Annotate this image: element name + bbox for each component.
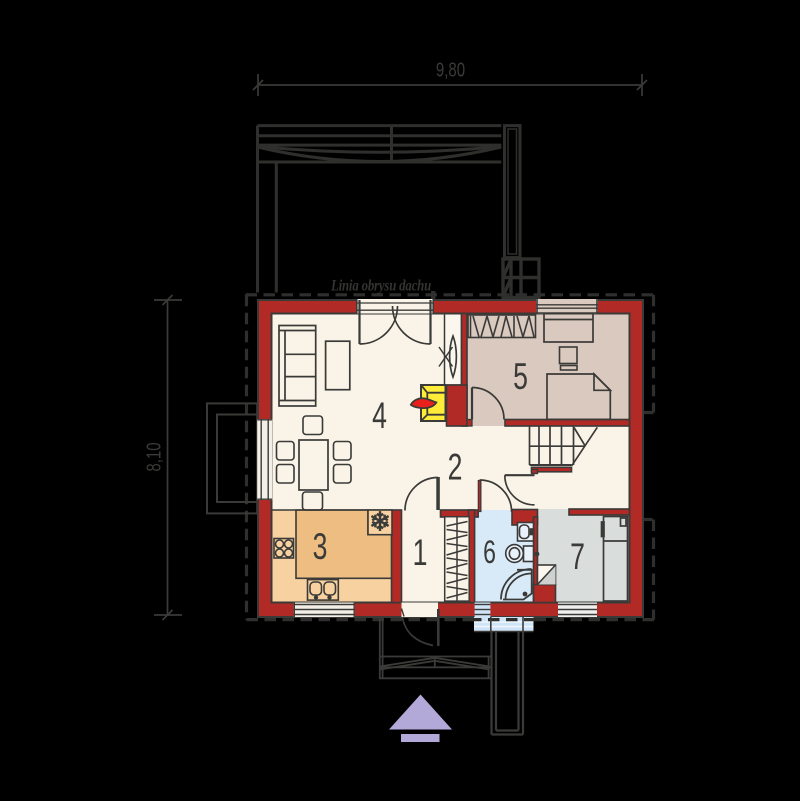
svg-text:8,10: 8,10 bbox=[142, 442, 165, 471]
svg-text:5: 5 bbox=[513, 356, 528, 397]
svg-text:1: 1 bbox=[413, 532, 428, 573]
svg-text:❄: ❄ bbox=[369, 507, 391, 537]
svg-text:9,80: 9,80 bbox=[436, 58, 465, 81]
svg-text:6: 6 bbox=[483, 534, 496, 570]
svg-text:7: 7 bbox=[570, 536, 585, 577]
svg-text:3: 3 bbox=[313, 526, 328, 567]
svg-text:4: 4 bbox=[372, 395, 387, 436]
svg-text:2: 2 bbox=[448, 446, 463, 487]
svg-text:Linia obrysu dachu: Linia obrysu dachu bbox=[330, 277, 431, 295]
